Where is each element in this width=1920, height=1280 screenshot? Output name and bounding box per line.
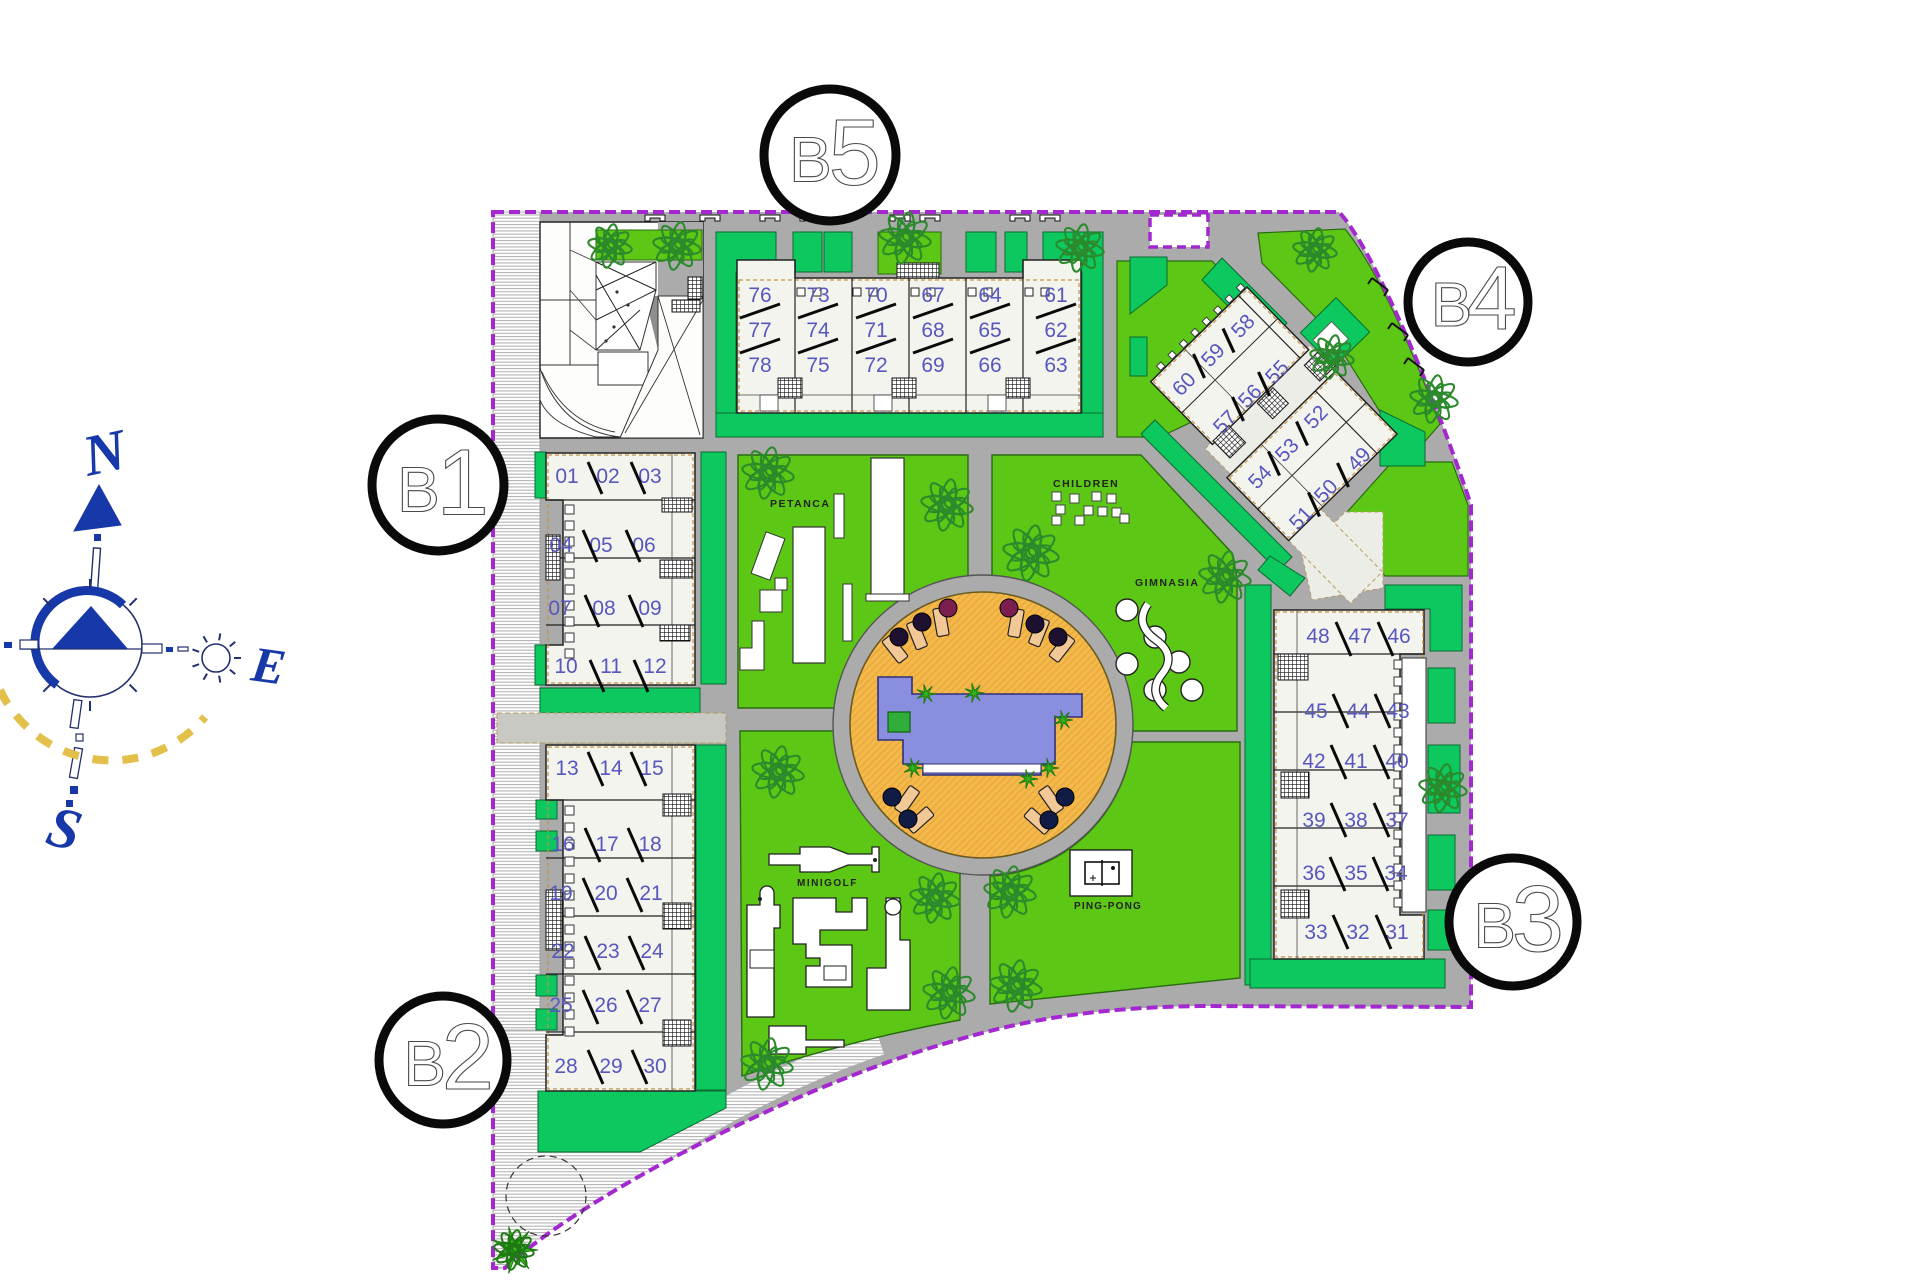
svg-text:12: 12 xyxy=(643,655,666,678)
svg-text:70: 70 xyxy=(864,284,887,307)
svg-text:21: 21 xyxy=(639,882,662,905)
svg-text:61: 61 xyxy=(1044,284,1067,307)
svg-text:47: 47 xyxy=(1348,625,1371,648)
svg-text:30: 30 xyxy=(643,1055,666,1078)
svg-text:33: 33 xyxy=(1304,921,1327,944)
svg-text:07: 07 xyxy=(548,597,571,620)
svg-text:45: 45 xyxy=(1304,700,1327,723)
svg-text:71: 71 xyxy=(864,319,887,342)
svg-text:CHILDREN: CHILDREN xyxy=(1053,478,1119,490)
svg-text:48: 48 xyxy=(1306,625,1329,648)
svg-text:39: 39 xyxy=(1302,809,1325,832)
svg-text:43: 43 xyxy=(1386,700,1409,723)
svg-text:41: 41 xyxy=(1344,750,1367,773)
svg-text:72: 72 xyxy=(864,354,887,377)
svg-text:01: 01 xyxy=(555,465,578,488)
svg-text:02: 02 xyxy=(596,465,619,488)
svg-text:PETANCA: PETANCA xyxy=(770,498,830,510)
svg-text:14: 14 xyxy=(599,757,623,780)
svg-text:64: 64 xyxy=(978,284,1002,307)
svg-text:10: 10 xyxy=(554,655,577,678)
svg-text:62: 62 xyxy=(1044,319,1067,342)
svg-text:32: 32 xyxy=(1346,921,1369,944)
svg-text:5: 5 xyxy=(829,100,881,205)
svg-text:11: 11 xyxy=(600,655,622,678)
svg-text:16: 16 xyxy=(551,833,574,856)
svg-text:28: 28 xyxy=(554,1055,577,1078)
svg-text:22: 22 xyxy=(551,940,574,963)
svg-text:73: 73 xyxy=(806,284,829,307)
svg-text:29: 29 xyxy=(599,1055,622,1078)
svg-text:24: 24 xyxy=(640,940,664,963)
svg-text:42: 42 xyxy=(1302,750,1325,773)
svg-text:13: 13 xyxy=(555,757,578,780)
svg-text:GIMNASIA: GIMNASIA xyxy=(1135,577,1200,589)
svg-text:40: 40 xyxy=(1385,750,1408,773)
svg-text:68: 68 xyxy=(921,319,944,342)
svg-text:4: 4 xyxy=(1467,249,1517,349)
svg-text:04: 04 xyxy=(549,534,573,557)
svg-text:PING-PONG: PING-PONG xyxy=(1074,901,1142,912)
svg-text:3: 3 xyxy=(1512,866,1564,971)
svg-text:26: 26 xyxy=(594,994,617,1017)
svg-text:44: 44 xyxy=(1346,700,1370,723)
svg-text:23: 23 xyxy=(596,940,619,963)
svg-text:25: 25 xyxy=(549,994,572,1017)
svg-text:46: 46 xyxy=(1387,625,1410,648)
svg-text:1: 1 xyxy=(437,430,489,535)
svg-text:36: 36 xyxy=(1302,862,1325,885)
svg-text:67: 67 xyxy=(921,284,944,307)
svg-text:76: 76 xyxy=(748,284,771,307)
svg-text:69: 69 xyxy=(921,354,944,377)
svg-text:77: 77 xyxy=(748,319,771,342)
svg-text:27: 27 xyxy=(638,994,661,1017)
svg-text:63: 63 xyxy=(1044,354,1067,377)
svg-text:34: 34 xyxy=(1384,862,1408,885)
svg-text:35: 35 xyxy=(1344,862,1367,885)
svg-text:18: 18 xyxy=(638,833,661,856)
svg-text:MINIGOLF: MINIGOLF xyxy=(797,878,858,889)
svg-text:66: 66 xyxy=(978,354,1001,377)
svg-text:B: B xyxy=(403,1028,446,1100)
svg-text:38: 38 xyxy=(1344,809,1367,832)
svg-text:20: 20 xyxy=(594,882,617,905)
svg-text:19: 19 xyxy=(549,882,572,905)
svg-text:75: 75 xyxy=(806,354,829,377)
svg-text:15: 15 xyxy=(640,757,663,780)
svg-text:09: 09 xyxy=(638,597,661,620)
svg-text:2: 2 xyxy=(442,1004,494,1109)
svg-text:78: 78 xyxy=(748,354,771,377)
svg-text:37: 37 xyxy=(1385,809,1408,832)
svg-text:17: 17 xyxy=(595,833,618,856)
svg-text:B: B xyxy=(789,123,832,195)
svg-text:74: 74 xyxy=(806,319,830,342)
svg-text:B: B xyxy=(397,453,440,525)
svg-text:B: B xyxy=(1473,890,1516,962)
svg-text:65: 65 xyxy=(978,319,1001,342)
